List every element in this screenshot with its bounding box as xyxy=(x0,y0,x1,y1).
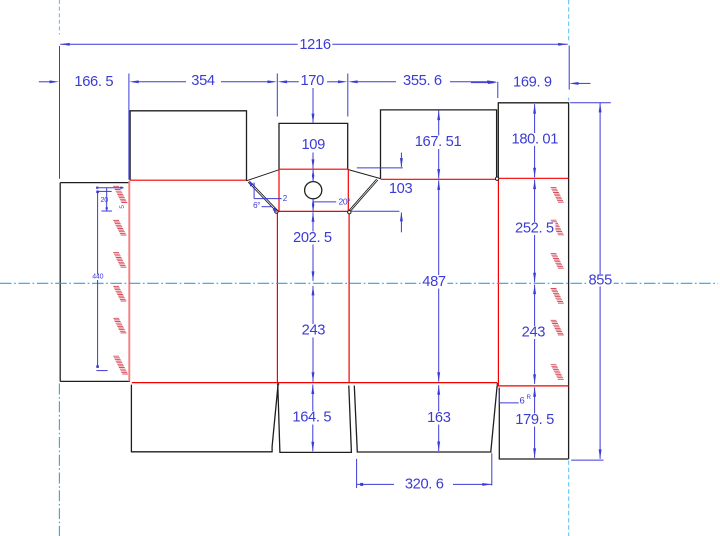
svg-text:5: 5 xyxy=(119,205,126,209)
svg-text:20°: 20° xyxy=(338,197,350,207)
svg-text:167. 51: 167. 51 xyxy=(415,134,462,150)
svg-text:109: 109 xyxy=(301,137,325,153)
svg-text:202. 5: 202. 5 xyxy=(293,230,332,246)
svg-text:252. 5: 252. 5 xyxy=(515,220,554,236)
svg-text:6°: 6° xyxy=(253,201,260,210)
svg-text:164. 5: 164. 5 xyxy=(292,410,331,426)
svg-text:355. 6: 355. 6 xyxy=(403,73,442,89)
svg-text:163: 163 xyxy=(427,410,451,426)
svg-text:6: 6 xyxy=(520,396,525,407)
svg-text:169. 9: 169. 9 xyxy=(513,74,552,90)
svg-text:20: 20 xyxy=(100,195,108,204)
svg-text:103: 103 xyxy=(389,181,413,197)
svg-text:166. 5: 166. 5 xyxy=(74,74,113,90)
svg-text:243: 243 xyxy=(522,325,546,341)
svg-text:179. 5: 179. 5 xyxy=(515,412,554,428)
svg-text:855: 855 xyxy=(588,272,612,288)
svg-text:180. 01: 180. 01 xyxy=(512,132,559,148)
svg-text:487: 487 xyxy=(422,274,446,290)
svg-text:1216: 1216 xyxy=(299,37,330,53)
svg-text:243: 243 xyxy=(302,323,326,339)
svg-text:440: 440 xyxy=(92,274,103,281)
svg-text:170: 170 xyxy=(300,73,324,89)
svg-text:320. 6: 320. 6 xyxy=(405,477,444,493)
svg-text:354: 354 xyxy=(191,73,215,89)
